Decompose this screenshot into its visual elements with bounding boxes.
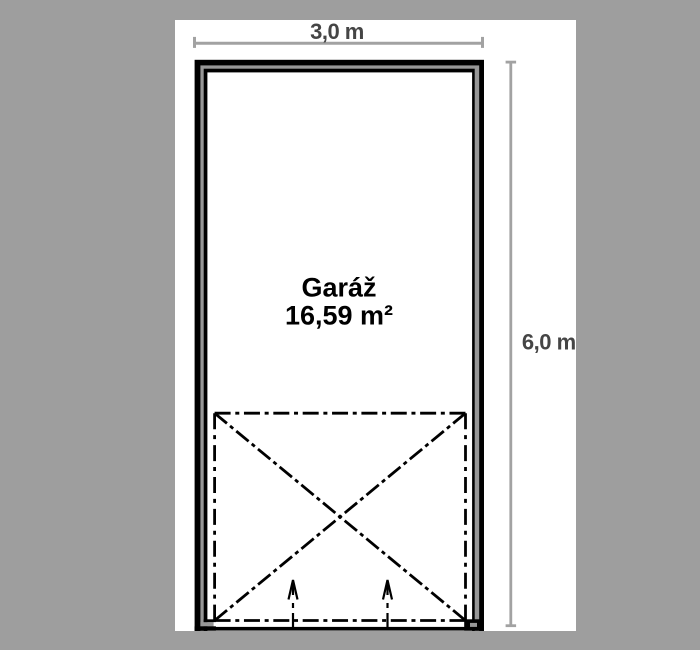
svg-text:16,59 m²: 16,59 m² [285, 300, 393, 330]
svg-text:3,0 m: 3,0 m [310, 19, 364, 44]
svg-text:6,0 m: 6,0 m [522, 330, 576, 355]
svg-text:Garáž: Garáž [301, 272, 376, 302]
